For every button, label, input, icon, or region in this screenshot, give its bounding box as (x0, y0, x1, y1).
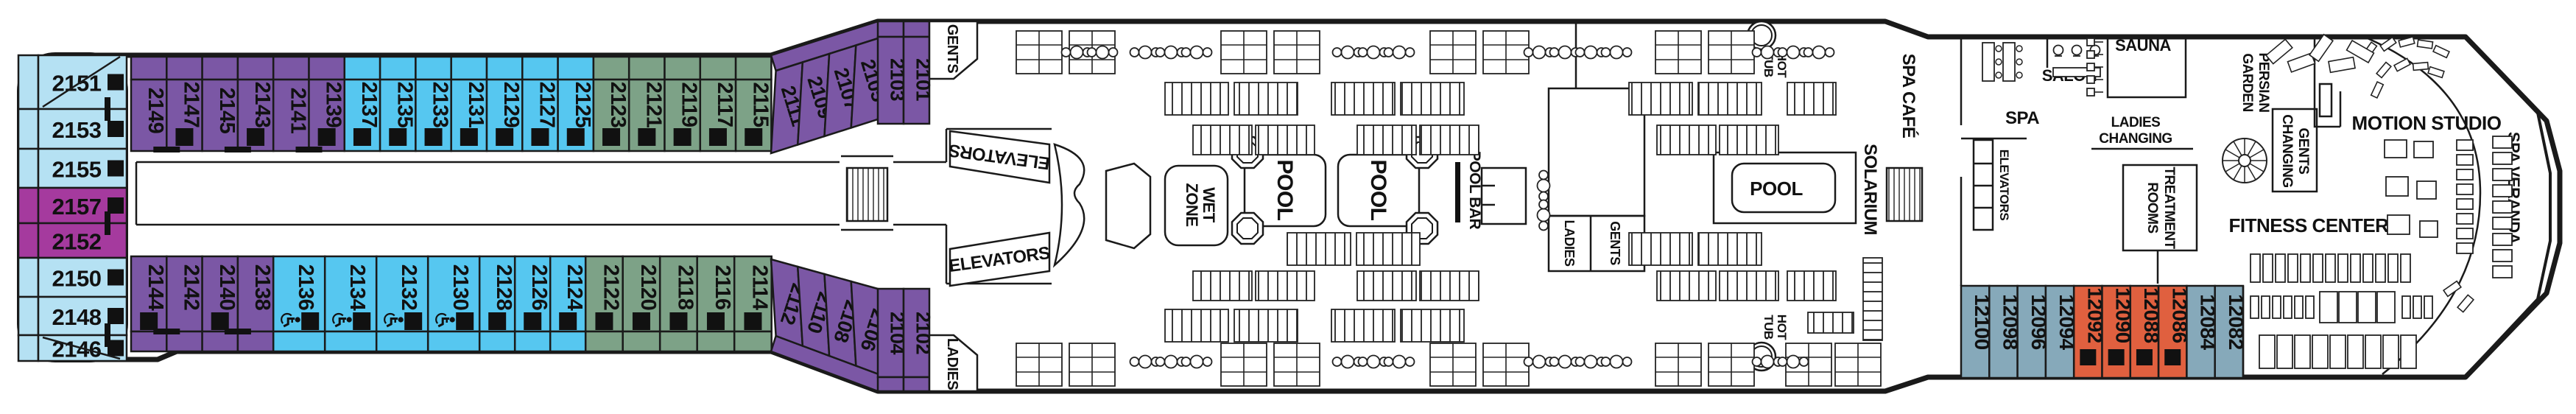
cabin-number: 2135 (393, 82, 416, 128)
sofa-bed-indicator (211, 312, 229, 330)
cabin-number: 2134 (345, 264, 369, 311)
cabin-number: 2116 (711, 265, 734, 310)
veranda-lounger (2493, 152, 2512, 164)
spa-label: SPA (2005, 108, 2039, 128)
sofa-bed-indicator (301, 312, 319, 330)
cabin-number: 2118 (673, 265, 697, 310)
sofa-bed-indicator (404, 312, 422, 330)
ladies-changing-label: LADIES (2111, 115, 2161, 130)
gym-equipment (2424, 296, 2432, 318)
sunbed-grid (1708, 343, 1754, 386)
sun-loungers (1356, 233, 1420, 265)
sun-loungers (1234, 309, 1298, 342)
sofa-bed-indicator (638, 128, 655, 146)
gym-equipment (2295, 335, 2310, 368)
connecting-door-indicator (296, 147, 323, 152)
spa-table (1982, 43, 1994, 81)
salon-chair (2072, 46, 2082, 57)
sofa-bed-indicator (389, 128, 407, 146)
sunbed-grid (1483, 343, 1529, 386)
sofa-bed-indicator (559, 312, 577, 330)
ladies-changing-label: CHANGING (2099, 131, 2172, 147)
sauna-label: SAUNA (2115, 36, 2171, 55)
gym-equipment (2277, 335, 2292, 368)
sofa-bed-indicator (531, 128, 549, 146)
sun-loungers (1720, 271, 1778, 301)
cabin-2155: 2155 (18, 149, 127, 188)
sofa-bed-indicator (353, 128, 371, 146)
gym-equipment (2339, 292, 2357, 323)
fitness-center-label: FITNESS CENTER (2229, 214, 2390, 236)
hot-tub-label: TUB (1762, 315, 1776, 340)
veranda-lounger (2493, 250, 2512, 262)
wet-zone-label: WET (1200, 187, 1218, 222)
cabin-2122: 2122 (585, 256, 623, 351)
sun-loungers (1629, 83, 1692, 115)
gym-equipment (2365, 335, 2381, 368)
sun-loungers (1401, 309, 1464, 342)
sun-loungers (1165, 83, 1228, 115)
cabin-number: 2130 (448, 264, 472, 311)
spa-table (2003, 43, 2015, 81)
gym-equipment (2413, 296, 2421, 318)
table-with-chairs (1182, 46, 1212, 59)
gym-equipment (2376, 254, 2385, 282)
sofa-bed-indicator (2164, 349, 2181, 365)
cabin-2135: 2135 (380, 57, 416, 151)
wet-zone-label: ZONE (1183, 183, 1201, 226)
gym-equipment (2457, 214, 2473, 224)
cabin-2118: 2118 (660, 256, 697, 351)
sun-loungers (1256, 125, 1315, 155)
sunbed-grid (1016, 343, 1062, 386)
cabin-2149: 2149 (131, 57, 167, 151)
salon-chair (2054, 46, 2063, 57)
gym-equipment (2306, 296, 2314, 318)
cabin-2125: 2125 (558, 57, 594, 151)
sofa-bed-indicator (744, 312, 761, 330)
treatment-rooms-label: TREATMENT (2161, 166, 2177, 249)
pool-label: POOL (1273, 159, 1297, 220)
sofa-bed-indicator (108, 308, 124, 324)
sauna-bench (2087, 88, 2094, 96)
cabin-number: 2148 (52, 304, 102, 330)
connecting-door-indicator (153, 147, 180, 152)
cabin-2133: 2133 (415, 57, 451, 151)
cabin-2123: 2123 (594, 57, 630, 151)
sun-loungers (1698, 233, 1762, 265)
gym-equipment (2457, 184, 2473, 194)
cabin-number: 2157 (52, 194, 102, 220)
ladies-label: LADIES (1562, 220, 1577, 267)
sofa-bed-indicator (108, 270, 124, 286)
cabin-number: 2131 (464, 82, 488, 128)
connecting-door-indicator (105, 97, 110, 121)
gym-equipment (2420, 221, 2438, 237)
sauna-bench (2087, 63, 2094, 71)
cabin-2147: 2147 (166, 57, 203, 151)
cabin-number: 2141 (286, 88, 309, 134)
gents-label: GENTS (944, 24, 960, 74)
sofa-bed-indicator (674, 128, 691, 146)
stairs (1887, 168, 1922, 221)
cabin-2117: 2117 (700, 57, 736, 151)
cabin-2143: 2143 (238, 57, 274, 151)
gents-label: GENTS (1608, 221, 1622, 265)
gym-equipment (2457, 199, 2473, 209)
gym-equipment (2320, 292, 2337, 323)
cabin-2130: 2130 (428, 256, 479, 351)
persian-garden-label: GARDEN (2239, 53, 2255, 111)
sun-loungers (1787, 83, 1836, 115)
sofa-bed-indicator (425, 128, 443, 146)
table-with-chairs (1538, 171, 1550, 201)
cabin-number: 2155 (52, 157, 102, 183)
gym-equipment (2358, 292, 2376, 323)
gym-equipment (2251, 296, 2259, 318)
gym-equipment (2386, 177, 2408, 196)
veranda-lounger (2493, 201, 2512, 213)
cabin-number: 2137 (357, 82, 381, 128)
sofa-bed-indicator (318, 128, 336, 146)
gym-equipment (2313, 254, 2323, 282)
pool-2: POOL (1338, 155, 1419, 226)
pool-bar: POOL BAR (1455, 151, 1483, 230)
gym-equipment (2312, 335, 2328, 368)
sunbed-grid (1016, 31, 1062, 74)
cabin-number: 2138 (250, 264, 274, 311)
gents-changing-label: GENTS (2295, 128, 2311, 175)
connecting-door-indicator (225, 329, 251, 334)
sauna-bench (2087, 76, 2094, 83)
cabin-number: 2133 (429, 82, 452, 128)
sun-loungers (1256, 271, 1315, 301)
sofa-bed-indicator (707, 312, 725, 330)
veranda-lounger (2493, 185, 2512, 197)
sun-loungers (1331, 309, 1395, 342)
cabin-number: 2152 (52, 229, 102, 255)
table-with-chairs (1538, 200, 1550, 231)
gym-equipment (2414, 141, 2433, 158)
sofa-bed-indicator (602, 128, 620, 146)
stairs (847, 168, 887, 221)
wet-zone: WET ZONE (1165, 166, 1228, 245)
gym-equipment (2301, 254, 2310, 282)
cabin-number: 2119 (678, 83, 701, 127)
gym-equipment (2385, 140, 2407, 158)
cabin-2121: 2121 (629, 57, 665, 151)
table-with-chairs (1088, 46, 1118, 59)
cabin-2139: 2139 (309, 57, 345, 151)
sofa-bed-indicator (108, 161, 124, 177)
cabin-2126: 2126 (515, 256, 551, 351)
sofa-bed-indicator (709, 128, 727, 146)
cabin-number: 2120 (636, 264, 660, 311)
gym-equipment (2295, 296, 2303, 318)
sunbed-grid (1708, 31, 1754, 74)
cabin-number: 2128 (492, 264, 515, 311)
cabin-number: 2150 (52, 266, 102, 292)
sofa-bed-indicator (496, 128, 513, 146)
cabin-number: 2117 (713, 83, 736, 127)
sofa-bed-indicator (108, 121, 124, 137)
sofa-bed-indicator (247, 128, 264, 146)
cabin-number: 2147 (179, 82, 203, 128)
gym-equipment (2288, 254, 2298, 282)
connecting-door-indicator (105, 211, 110, 235)
sun-loungers (1234, 83, 1298, 115)
pool-bar-label: POOL BAR (1466, 151, 1483, 230)
sofa-bed-indicator (108, 197, 124, 214)
sofa-bed-indicator (633, 312, 650, 330)
pool-label: POOL (1750, 178, 1803, 200)
cabin-number: 2114 (747, 265, 771, 310)
veranda-lounger (2493, 136, 2512, 148)
cabin-number: 2129 (499, 82, 523, 128)
gym-equipment (2402, 296, 2410, 318)
sofa-bed-indicator (108, 74, 124, 91)
cabin-number: 2142 (179, 264, 203, 311)
table-with-chairs (1778, 356, 1809, 368)
cabin-2140: 2140 (203, 256, 239, 351)
gym-equipment (2457, 228, 2473, 239)
cabin-number: 2140 (215, 264, 239, 311)
sofa-bed-indicator (2108, 349, 2125, 365)
sofa-bed-indicator (595, 312, 613, 330)
table-with-chairs (1384, 356, 1415, 368)
sunbed-grid (1221, 343, 1267, 386)
sunbed-grid (1069, 343, 1115, 386)
cabin-2120: 2120 (623, 256, 661, 351)
sun-loungers (1420, 125, 1479, 155)
sunbed-grid (1483, 31, 1529, 74)
stool (2016, 72, 2022, 78)
table-with-chairs (1384, 46, 1415, 59)
sofa-bed-indicator (460, 128, 478, 146)
cabin-number: 2153 (52, 117, 102, 143)
cabin-number: 2122 (599, 264, 622, 311)
cabin-2144: 2144 (131, 256, 167, 351)
sauna-bench (2087, 51, 2094, 58)
sun-loungers (1331, 83, 1395, 115)
sun-loungers (1808, 312, 1854, 333)
sun-loungers (1401, 83, 1464, 115)
table-with-chairs (1602, 46, 1632, 59)
solarium-label: SOLARIUM (1860, 144, 1880, 235)
gym-equipment (2276, 254, 2285, 282)
gym-equipment (2348, 335, 2363, 368)
table-with-chairs (1602, 356, 1632, 368)
table-with-chairs (1804, 46, 1834, 59)
cabin-2128: 2128 (479, 256, 515, 351)
gym-equipment (2457, 169, 2473, 180)
sun-loungers (1420, 271, 1479, 301)
cabin-number: 2125 (571, 82, 594, 128)
deck-plan: 2151215321552157215221502148214621492147… (0, 0, 2576, 414)
cabin-number: 2144 (144, 264, 167, 311)
sofa-bed-indicator (567, 128, 585, 146)
sofa-bed-indicator (2136, 349, 2153, 365)
cabin-number: 2123 (606, 82, 630, 128)
gym-equipment (2259, 335, 2275, 368)
sun-loungers (1657, 125, 1716, 155)
sunbed-grid (1835, 343, 1881, 386)
cabin-number: 2132 (397, 264, 420, 311)
cabin-number: 2146 (52, 337, 102, 362)
sun-loungers (1698, 83, 1762, 115)
gym-equipment (2263, 254, 2273, 282)
connecting-door-indicator (225, 147, 251, 152)
sun-loungers (1787, 271, 1836, 301)
cabin-number: 2139 (322, 82, 345, 128)
cabin-2124: 2124 (550, 256, 586, 351)
cabin-2132: 2132 (376, 256, 428, 351)
veranda-lounger (2493, 217, 2512, 229)
motion-studio-label: MOTION STUDIO (2352, 112, 2502, 134)
cabin-number: 2115 (748, 83, 772, 127)
gym-equipment (2262, 296, 2270, 318)
treatment-rooms-label: ROOMS (2144, 182, 2160, 233)
gents-changing-label: CHANGING (2279, 114, 2295, 187)
cabin-number: 2121 (641, 82, 665, 128)
sauna-bench (2087, 38, 2094, 46)
cabin-2134: 2134 (325, 256, 376, 351)
connecting-door-indicator (105, 323, 110, 347)
sunbed-grid (1274, 343, 1320, 386)
sofa-bed-indicator (353, 312, 370, 330)
sunbed-grid (1430, 31, 1476, 74)
cabin-2129: 2129 (487, 57, 523, 151)
sofa-bed-indicator (669, 312, 687, 330)
cabin-2116: 2116 (697, 256, 735, 351)
cabin-number: 2145 (215, 88, 239, 134)
stool (1996, 72, 2002, 78)
persian-garden-label: PERSIAN (2256, 53, 2271, 113)
sun-loungers (1863, 258, 1882, 340)
gym-equipment (2388, 254, 2398, 282)
sofa-bed-indicator (140, 312, 158, 330)
exercise-mat (2413, 63, 2429, 71)
whirlpool (1232, 213, 1263, 244)
cabin-number: 2149 (144, 88, 167, 134)
cabin-2138: 2138 (238, 256, 274, 351)
sun-loungers (1193, 125, 1252, 155)
stool (1996, 59, 2002, 65)
veranda-lounger (2493, 234, 2512, 245)
sun-loungers (1357, 125, 1416, 155)
gym-equipment (2377, 292, 2395, 323)
sun-loungers (1720, 125, 1778, 155)
sofa-bed-indicator (745, 128, 762, 146)
spa-cafe-label: SPA CAFÉ (1898, 54, 1919, 138)
stool (2016, 46, 2022, 52)
gym-equipment (2383, 335, 2399, 368)
cabin-number: 2126 (527, 264, 551, 311)
cabin-2145: 2145 (203, 57, 239, 151)
gym-equipment (2417, 181, 2436, 199)
sun-loungers (1165, 309, 1228, 342)
gym-equipment (2387, 215, 2410, 234)
gym-equipment (2273, 296, 2281, 318)
sofa-bed-indicator (488, 312, 506, 330)
hot-tub-label: HOT (1775, 315, 1789, 341)
sun-loungers (1287, 233, 1351, 265)
cabin-2114: 2114 (734, 256, 771, 351)
sofa-bed-indicator (2080, 349, 2096, 365)
gym-equipment (2351, 254, 2360, 282)
cabin-2141: 2141 (273, 57, 309, 151)
cabin-2142: 2142 (166, 256, 203, 351)
sunbed-grid (1430, 343, 1476, 386)
gym-equipment (2457, 155, 2473, 165)
sunbed-grid (1274, 31, 1320, 74)
sunbed-grid (1221, 31, 1267, 74)
sun-loungers (1193, 271, 1252, 301)
stool (2016, 59, 2022, 65)
sofa-bed-indicator (524, 312, 541, 330)
cabin-2136: 2136 (273, 256, 325, 351)
gym-equipment (2251, 254, 2260, 282)
spiral-staircase (2223, 138, 2267, 183)
cabin-2115: 2115 (736, 57, 772, 151)
gym-equipment (2457, 243, 2473, 253)
veranda-lounger (2493, 266, 2512, 278)
gym-equipment (2338, 254, 2348, 282)
gym-equipment (2330, 335, 2346, 368)
ladies-label: LADIES (944, 338, 960, 390)
gym-equipment (2284, 296, 2292, 318)
veranda-lounger (2493, 169, 2512, 180)
cabin-number: 2143 (250, 82, 274, 128)
cabin-2127: 2127 (522, 57, 558, 151)
sofa-bed-indicator (175, 128, 193, 146)
cabin-number: 2136 (294, 264, 317, 311)
connecting-door-indicator (153, 329, 180, 334)
pool-label: POOL (1366, 159, 1390, 220)
gym-equipment (2401, 335, 2416, 368)
sun-loungers (1629, 233, 1692, 265)
sun-loungers (1657, 271, 1716, 301)
cabin-2131: 2131 (451, 57, 488, 151)
gym-equipment (2326, 254, 2335, 282)
gym-equipment (2401, 254, 2410, 282)
sunbed-grid (1655, 31, 1701, 74)
stool (1996, 46, 2002, 52)
elevators-label: ELEVATORS (1997, 150, 2011, 221)
gym-equipment (2363, 254, 2373, 282)
cabin-2137: 2137 (345, 57, 381, 151)
sun-loungers (1357, 271, 1416, 301)
cabin-number: 2127 (535, 82, 558, 128)
cabin-2119: 2119 (665, 57, 701, 151)
sunbed-grid (1655, 343, 1701, 386)
cabin-2150: 2150 (18, 258, 127, 297)
solarium-pool: POOL (1732, 164, 1835, 212)
table-with-chairs (1182, 356, 1212, 368)
gym-equipment (2457, 140, 2473, 150)
sofa-bed-indicator (456, 312, 474, 330)
cabin-number: 2124 (563, 264, 586, 311)
exercise-mat (2417, 40, 2432, 49)
